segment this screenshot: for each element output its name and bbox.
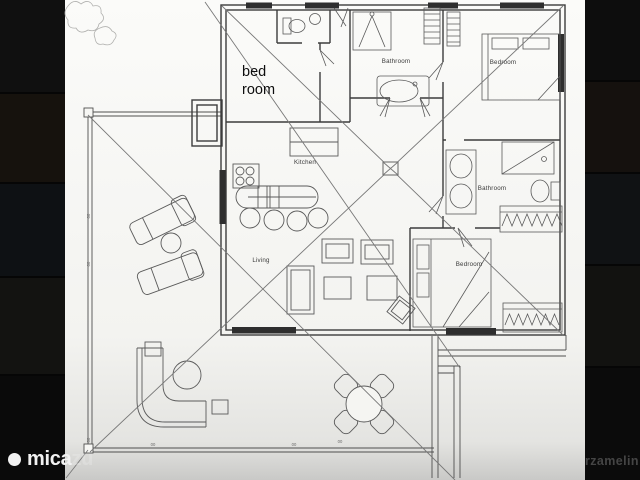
micazu-logo-text-faded: zu <box>71 448 93 470</box>
dimension-tick: 00 <box>292 442 297 447</box>
annotation-line-1: bed <box>242 64 266 80</box>
room-label-kitchen: Kitchen <box>294 159 316 166</box>
room-label-bedroom-bottom-right: Bedroom <box>456 261 483 268</box>
micazu-logo: micazu <box>8 448 93 471</box>
room-label-living: Living <box>252 257 270 264</box>
dimension-tick: 00 <box>151 442 156 447</box>
collection-watermark: rzamelin <box>585 454 640 468</box>
dimension-tick: 00 <box>86 261 91 266</box>
annotation-line-2: room <box>242 82 275 98</box>
dimension-tick: 00 <box>86 437 91 442</box>
micazu-logo-text-visible: mica <box>27 448 71 470</box>
micazu-logo-icon <box>8 453 21 466</box>
dimension-tick: 00 <box>86 213 91 218</box>
room-label-bathroom-top: Bathroom <box>382 58 410 65</box>
floor-plan-image: 00 00 00 00 00 00 Bathroom Bedroom Kitch… <box>0 0 640 480</box>
room-label-bathroom-right: Bathroom <box>478 185 506 192</box>
photo-viewer: 00 00 00 00 00 00 Bathroom Bedroom Kitch… <box>0 0 640 480</box>
dimension-tick: 00 <box>338 439 343 444</box>
micazu-logo-text: micazu <box>27 448 93 471</box>
room-label-bedroom-top-right: Bedroom <box>490 59 517 66</box>
